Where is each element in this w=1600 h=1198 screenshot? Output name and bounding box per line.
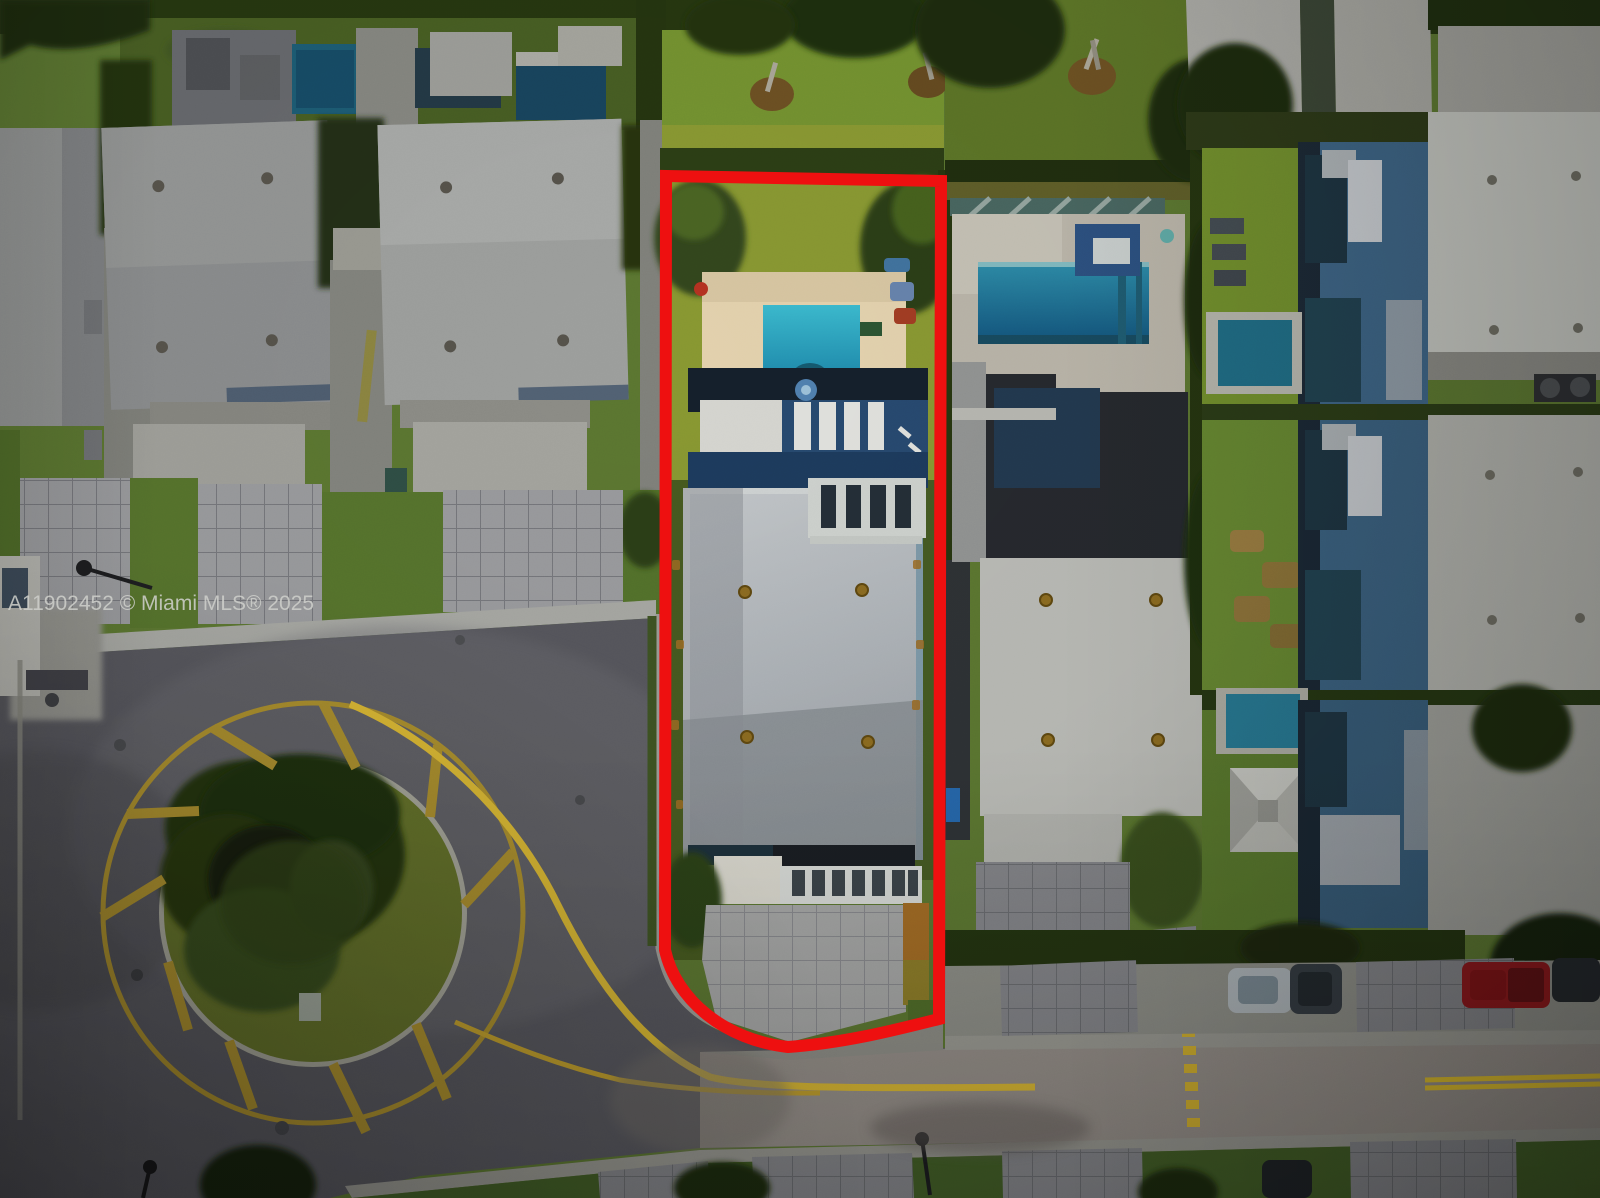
- svg-text:A11902452 © Miami MLS® 2025: A11902452 © Miami MLS® 2025: [8, 592, 314, 615]
